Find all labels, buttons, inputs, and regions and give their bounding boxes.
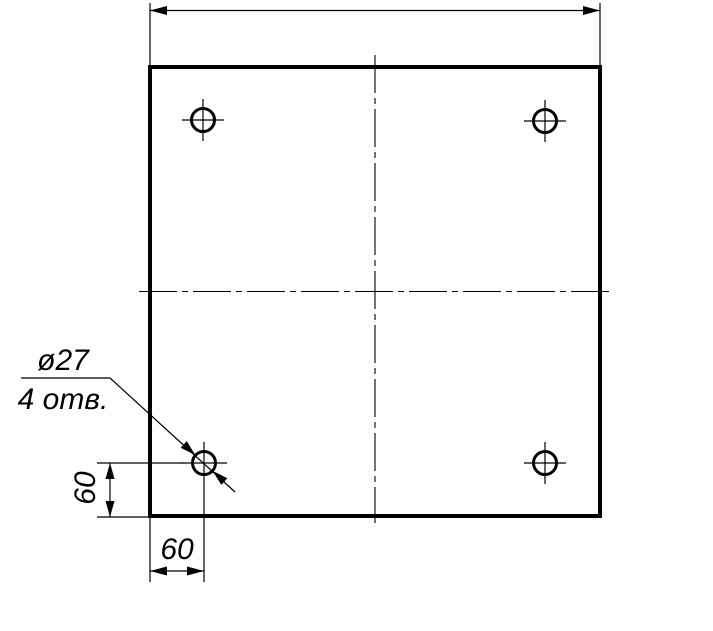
top-dim-arrow-right — [583, 6, 600, 15]
dimension-vertical-60: 60 — [69, 463, 183, 517]
hole-top-left — [182, 99, 224, 141]
hdim-arrow-left — [150, 567, 167, 576]
top-dim-arrow-left — [150, 6, 167, 15]
technical-drawing: ø27 4 отв. 60 60 — [0, 0, 713, 631]
hole-count-label: 4 отв. — [18, 383, 109, 416]
hole-bottom-right — [524, 442, 566, 484]
vdim-arrow-up — [106, 463, 115, 479]
drawing-canvas: ø27 4 отв. 60 60 — [0, 0, 713, 631]
hole-callout: ø27 4 отв. — [18, 344, 235, 492]
hole-top-right — [524, 100, 566, 142]
vdim-arrow-down — [106, 501, 115, 517]
callout-arrow-upper — [181, 441, 196, 455]
hole-diameter-label: ø27 — [37, 344, 90, 377]
vdim-value: 60 — [69, 471, 102, 505]
hdim-arrow-right — [187, 567, 204, 576]
dimension-horizontal-60: 60 — [150, 484, 204, 582]
hdim-value: 60 — [160, 533, 194, 566]
